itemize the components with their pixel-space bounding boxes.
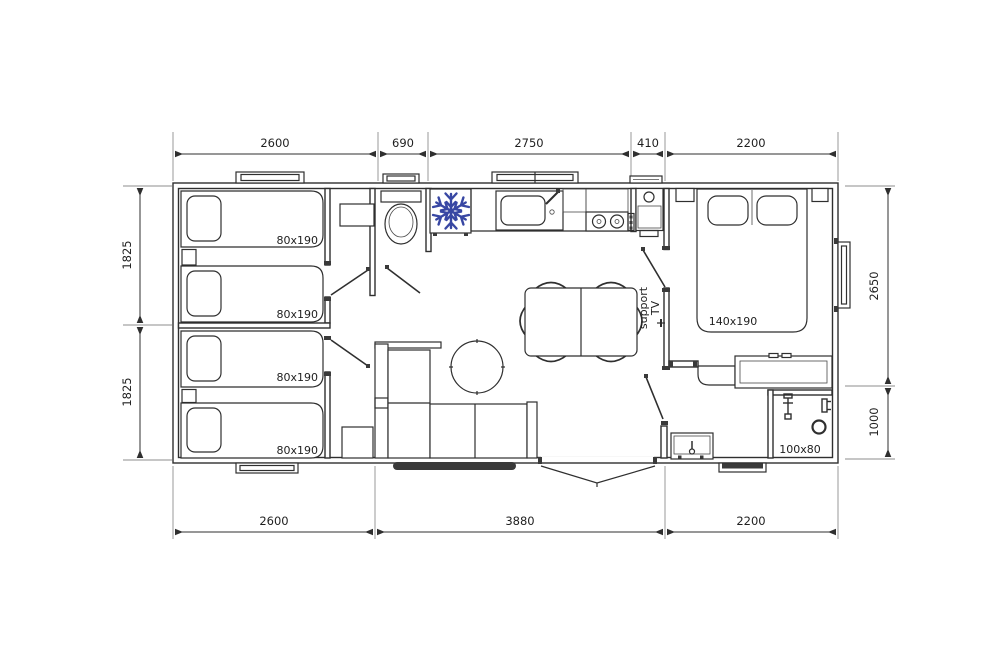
dim-top-1: 2600 [260, 136, 289, 150]
floor-plan-drawing: 2600 690 2750 410 2200 2600 3880 2200 18… [0, 0, 1000, 667]
dim-bottom-1: 2600 [259, 514, 288, 528]
single-bed-1: 80x190 [181, 191, 323, 247]
dimension-chain-right: 2650 1000 [845, 186, 895, 459]
nightstand [182, 390, 196, 403]
closet-bedroom-2 [342, 427, 373, 458]
dim-top-5: 2200 [736, 136, 765, 150]
window-top-wc [383, 174, 419, 183]
water-heater [636, 189, 663, 237]
dim-bottom-3: 2200 [736, 514, 765, 528]
dim-left-1: 1825 [120, 240, 134, 269]
entry-frame-right [653, 457, 657, 464]
nightstand-left [676, 189, 694, 202]
single-bed-2: 80x190 [181, 266, 323, 322]
bed-size-label: 80x190 [276, 371, 318, 384]
closet-bedroom-1 [340, 204, 374, 226]
nightstand [182, 250, 196, 266]
window-bottom-bath [719, 463, 766, 472]
entry-frame-left [538, 457, 542, 464]
wardrobe [735, 354, 832, 389]
entry-opening [541, 457, 654, 462]
bed-size-label: 80x190 [276, 234, 318, 247]
washbasin [671, 433, 713, 459]
single-bed-4: 80x190 [181, 403, 323, 458]
dim-bottom-2: 3880 [505, 514, 534, 528]
bed-size-label: 80x190 [276, 308, 318, 321]
shower-size-label: 100x80 [779, 443, 821, 456]
dim-top-4: 410 [637, 136, 659, 150]
nightstand-right [812, 189, 828, 202]
kitchen-sink [496, 189, 563, 230]
fridge [430, 189, 471, 236]
entry-french-door [541, 466, 655, 487]
double-bed: 140x190 [697, 189, 807, 332]
floor-plan-page: 2600 690 2750 410 2200 2600 3880 2200 18… [0, 0, 1000, 667]
bed-size-label: 140x190 [709, 315, 758, 328]
dim-left-2: 1825 [120, 377, 134, 406]
dimension-chain-left: 1825 1825 [120, 186, 172, 460]
dim-top-3: 2750 [514, 136, 543, 150]
toilet-tank [381, 191, 421, 202]
dimension-chain-bottom: 2600 3880 2200 [173, 466, 838, 539]
single-bed-3: 80x190 [181, 331, 323, 387]
tv-support-label-2: TV [649, 300, 662, 316]
window-top-kitchen [492, 172, 578, 183]
dim-right-1: 2650 [867, 271, 881, 300]
bed-size-label: 80x190 [276, 444, 318, 457]
window-bottom-bedroom [236, 463, 298, 473]
window-top-bedroom [236, 172, 304, 183]
window-top-heater [630, 176, 662, 183]
dim-top-2: 690 [392, 136, 414, 150]
bay-window-sill [393, 462, 516, 470]
dim-right-2: 1000 [867, 407, 881, 436]
